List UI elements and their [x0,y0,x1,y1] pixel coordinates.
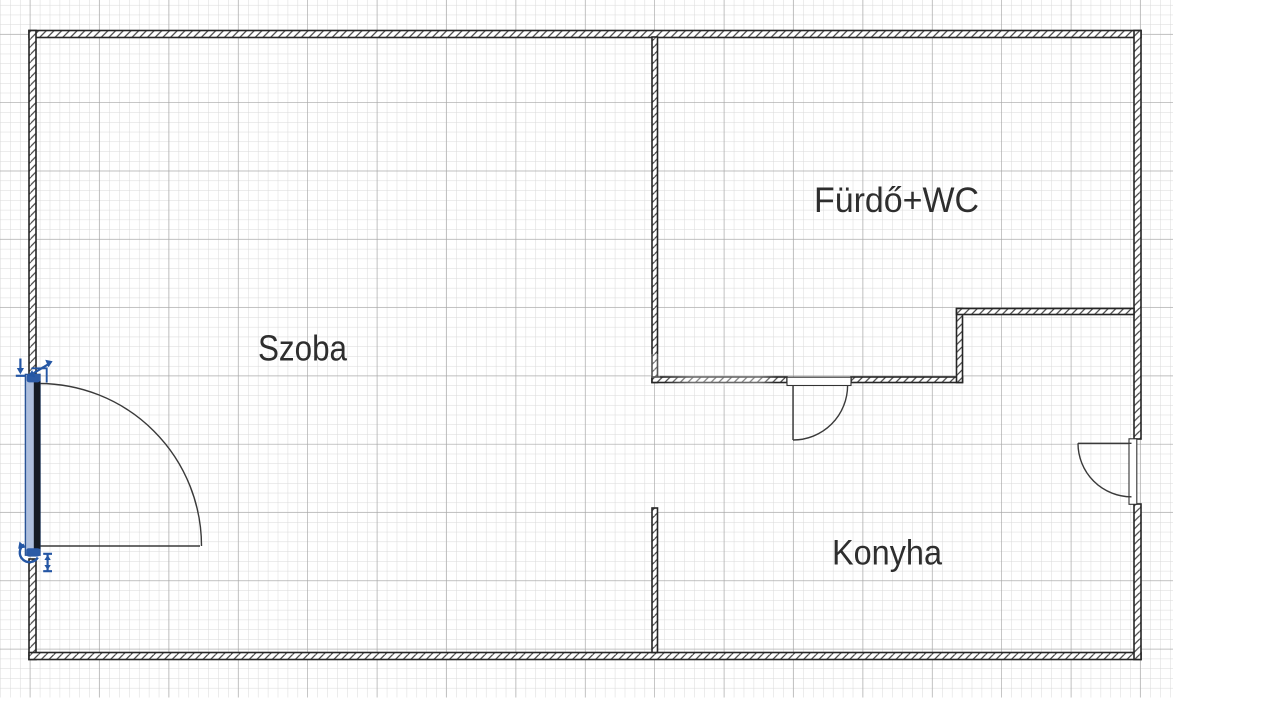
svg-text:Fürdő+WC: Fürdő+WC [814,181,979,220]
svg-text:Szoba: Szoba [258,328,348,369]
svg-text:Konyha: Konyha [832,533,942,572]
